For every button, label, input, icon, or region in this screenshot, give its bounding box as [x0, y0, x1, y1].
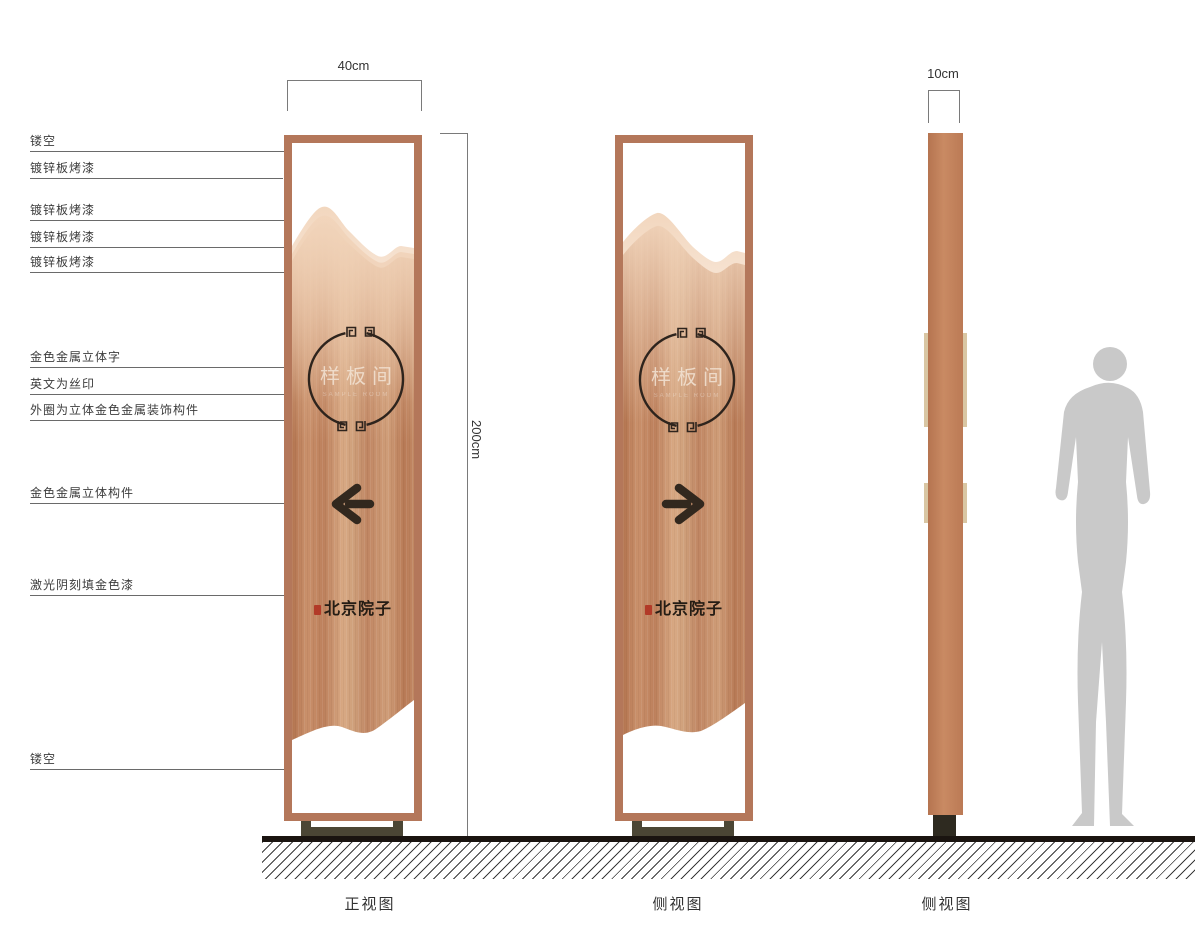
view-label-side2: 侧视图	[897, 893, 997, 914]
profile-tab-left-upper	[924, 333, 928, 427]
callout-label: 金色金属立体构件	[30, 486, 134, 500]
emblem-text-group: 样板间 SAMPLE ROOM	[632, 325, 742, 435]
callout-galvanized-2: 镀锌板烤漆	[30, 203, 322, 221]
human-scale-silhouette	[1038, 343, 1170, 837]
callout-laser-engrave: 激光阴刻填金色漆	[30, 578, 300, 596]
profile-tab-left-lower	[924, 483, 928, 523]
room-name-text: 样板间	[645, 361, 729, 390]
dim-height-line	[467, 133, 468, 836]
callout-hollow-bottom: 镂空	[30, 752, 300, 770]
dim-height-label: 200cm	[469, 420, 484, 459]
callout-label: 镀锌板烤漆	[30, 230, 95, 244]
emblem-text-group: 样板间 SAMPLE ROOM	[301, 324, 411, 434]
callout-label: 英文为丝印	[30, 377, 95, 391]
seal-stamp-icon	[645, 605, 652, 615]
brand-row: 北京院子	[298, 595, 408, 619]
brand-row: 北京院子	[629, 595, 739, 619]
callout-galvanized-4: 镀锌板烤漆	[30, 255, 293, 273]
callout-label: 镂空	[30, 134, 56, 148]
callout-galvanized-3: 镀锌板烤漆	[30, 230, 292, 248]
profile-tab-right-lower	[963, 483, 967, 523]
room-name-english: SAMPLE ROOM	[654, 393, 721, 399]
room-name-text: 样板间	[314, 360, 398, 389]
brand-text: 北京院子	[655, 601, 723, 618]
front-sign-panel: 样板间 SAMPLE ROOM 北京院子	[292, 143, 414, 813]
arrow-right-icon	[660, 483, 708, 525]
callout-label: 镀锌板烤漆	[30, 203, 95, 217]
arrow-left-icon	[328, 483, 376, 525]
callout-galvanized-1: 镀锌板烤漆	[30, 161, 283, 179]
callout-label: 镂空	[30, 752, 56, 766]
callout-label: 金色金属立体字	[30, 350, 121, 364]
side-profile-bar	[928, 133, 963, 815]
dim-side-width-label: 10cm	[913, 66, 973, 81]
callout-outer-ring: 外圈为立体金色金属装饰构件	[30, 403, 320, 421]
dim-front-width-label: 40cm	[287, 58, 420, 73]
dim-height-tick	[440, 133, 467, 134]
side-sign-panel: 样板间 SAMPLE ROOM 北京院子	[623, 143, 745, 813]
profile-tab-right-upper	[963, 333, 967, 427]
front-view-sign: 样板间 SAMPLE ROOM 北京院子	[284, 135, 422, 821]
seal-stamp-icon	[314, 605, 321, 615]
callout-hollow-top: 镂空	[30, 134, 307, 152]
side-view-sign: 样板间 SAMPLE ROOM 北京院子	[615, 135, 753, 821]
callout-label: 镀锌板烤漆	[30, 255, 95, 269]
room-name-english: SAMPLE ROOM	[323, 392, 390, 398]
dim-front-width-bracket	[287, 80, 422, 111]
brand-text: 北京院子	[324, 601, 392, 618]
mountain-silhouette	[623, 143, 745, 813]
front-base-bar	[301, 827, 403, 836]
profile-foot	[933, 815, 956, 838]
ground-hatch	[262, 842, 1195, 879]
view-label-side1: 侧视图	[628, 893, 728, 914]
mountain-silhouette	[292, 143, 414, 813]
signage-design-drawing: 镂空 镀锌板烤漆 镀锌板烤漆 镀锌板烤漆 镀锌板烤漆 金色金属立体字 英文为丝印…	[0, 0, 1195, 927]
callout-label: 镀锌板烤漆	[30, 161, 95, 175]
callout-label: 激光阴刻填金色漆	[30, 578, 134, 592]
dim-side-width-bracket	[928, 90, 960, 123]
callout-label: 外圈为立体金色金属装饰构件	[30, 403, 199, 417]
side-base-bar	[632, 827, 734, 836]
view-label-front: 正视图	[320, 893, 420, 914]
